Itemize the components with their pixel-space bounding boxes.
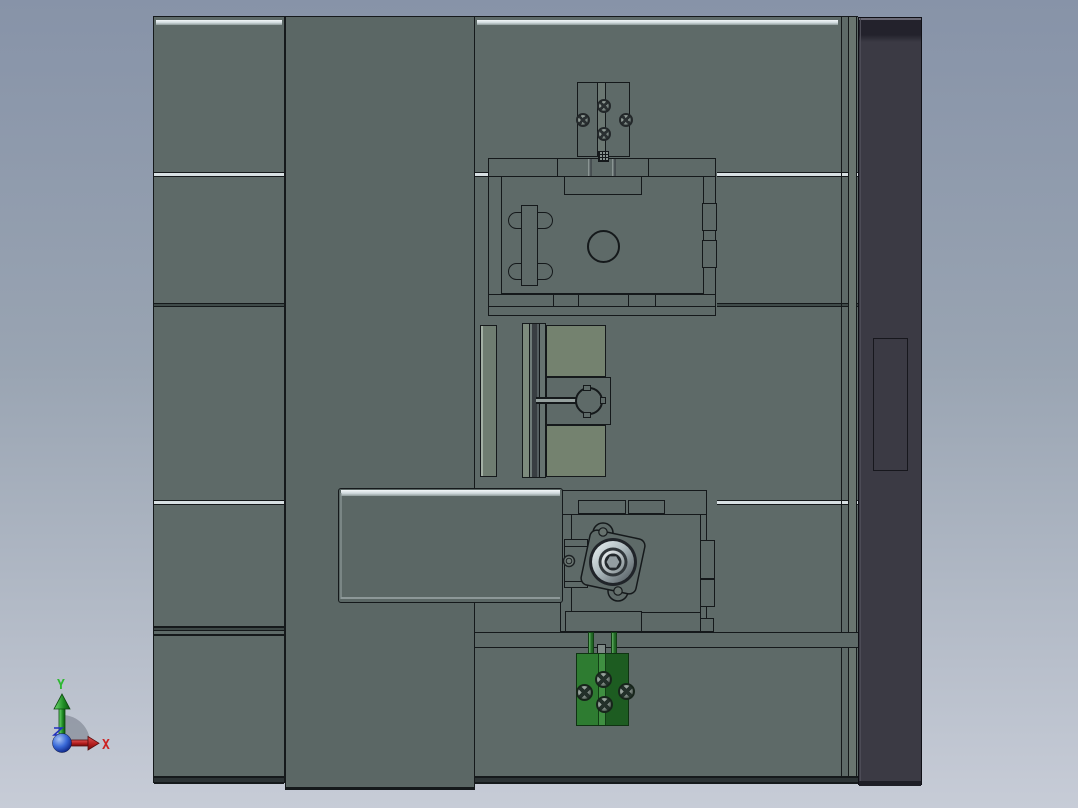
plate-edge-highlight xyxy=(156,20,282,25)
plate-seam xyxy=(475,172,488,177)
flange-bearing[interactable] xyxy=(552,498,677,628)
base-plate-left[interactable] xyxy=(153,16,285,783)
y-axis-label: Y xyxy=(57,678,65,693)
motor-edge-highlight xyxy=(340,493,342,599)
gripper-center-strip xyxy=(597,83,606,156)
grid-screw[interactable] xyxy=(598,151,609,162)
mount-tab xyxy=(628,294,656,307)
plate-seam xyxy=(154,303,284,307)
screw-hole[interactable] xyxy=(576,113,590,127)
slide-screw[interactable] xyxy=(618,683,635,700)
mount-step-plate[interactable] xyxy=(564,176,642,195)
flange-ear-hole xyxy=(599,528,607,536)
bracket-screw[interactable] xyxy=(564,556,575,567)
plate-seam xyxy=(717,172,858,177)
shaft-coupling[interactable] xyxy=(575,387,603,415)
drive-shaft[interactable] xyxy=(536,397,577,404)
bore-hole[interactable] xyxy=(587,230,620,263)
side-panel-slot[interactable] xyxy=(873,338,908,471)
plate-bottom-edge xyxy=(154,776,284,784)
edge-notch xyxy=(700,540,715,579)
mount-tab xyxy=(553,294,579,307)
edge-notch xyxy=(702,240,717,268)
upper-mount-box[interactable] xyxy=(488,158,716,316)
side-panel-bottom-edge xyxy=(859,781,921,786)
panel-joint-line xyxy=(841,17,842,784)
guide-side-plate[interactable] xyxy=(480,325,497,477)
motor-edge-highlight xyxy=(341,597,560,599)
slide-screw[interactable] xyxy=(595,671,612,688)
edge-rail-strip[interactable] xyxy=(848,17,857,784)
x-axis-label: X xyxy=(102,738,110,753)
slide-screw[interactable] xyxy=(576,684,593,701)
plate-seam xyxy=(717,500,858,505)
slide-panel-upper[interactable] xyxy=(546,325,606,377)
box-inner-line xyxy=(489,294,715,295)
edge-notch xyxy=(700,579,715,607)
guide-rod[interactable] xyxy=(588,632,594,654)
slide-panel-lower[interactable] xyxy=(546,425,606,477)
flange-ear-hole xyxy=(614,587,622,595)
screw-hole[interactable] xyxy=(597,127,611,141)
guide-rod[interactable] xyxy=(611,632,617,654)
coupling-keyway xyxy=(583,412,591,418)
plate-seam xyxy=(154,172,284,177)
edge-notch xyxy=(702,203,717,231)
screw-hole[interactable] xyxy=(619,113,633,127)
box-inner-line xyxy=(489,306,715,307)
slide-screw[interactable] xyxy=(596,696,613,713)
y-axis-arrowhead xyxy=(54,694,70,709)
cross-beam[interactable] xyxy=(475,632,858,648)
side-panel-edge-line xyxy=(860,18,861,784)
cad-viewport[interactable]: Y X xyxy=(0,0,1078,808)
clamp-bracket[interactable] xyxy=(521,205,538,286)
x-axis-arrowhead xyxy=(88,737,99,751)
orientation-triad[interactable]: Y X xyxy=(40,672,130,762)
coupling-keyway xyxy=(583,385,591,391)
bearing-hex-bore xyxy=(606,556,620,568)
coupling-keyway xyxy=(600,397,606,404)
motor-body[interactable] xyxy=(338,488,563,603)
side-panel-top-cap xyxy=(859,18,921,42)
origin-sphere[interactable] xyxy=(53,734,72,753)
guide-pin xyxy=(612,159,617,176)
edge-notch xyxy=(700,618,714,632)
plate-seam xyxy=(154,626,284,636)
plate-bottom-edge xyxy=(475,776,858,784)
side-panel-dark[interactable] xyxy=(858,17,922,785)
center-column[interactable] xyxy=(285,16,475,790)
motor-edge-highlight xyxy=(341,490,560,496)
plate-seam xyxy=(717,303,858,307)
plate-seam xyxy=(154,500,284,505)
guide-pin xyxy=(588,159,593,176)
plate-edge-highlight xyxy=(477,20,838,25)
screw-hole[interactable] xyxy=(597,99,611,113)
